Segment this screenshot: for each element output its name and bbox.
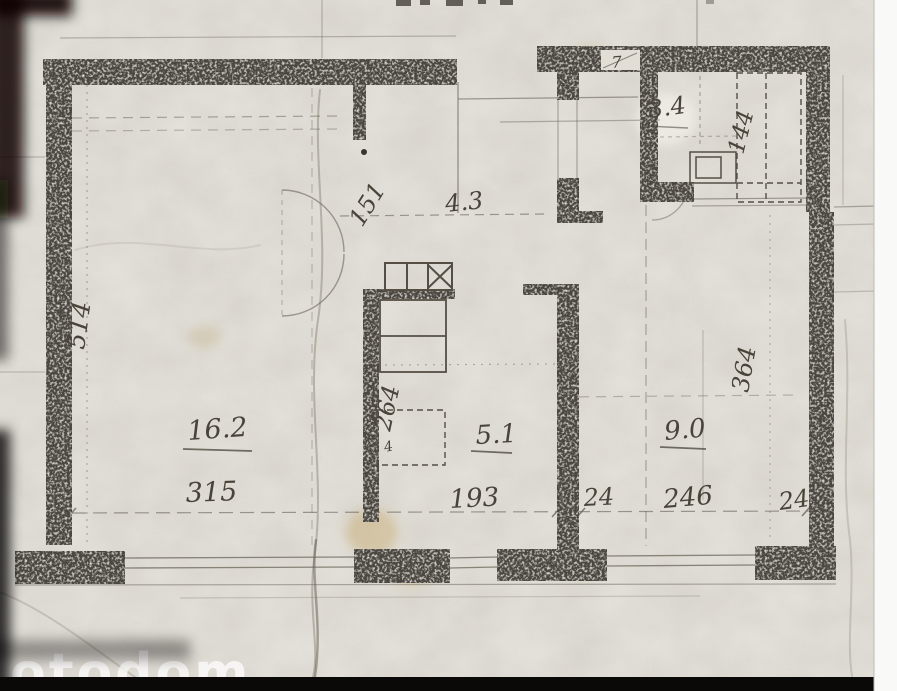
floor-plan-svg: 7	[0, 0, 897, 691]
area-label-hall: 4.3	[443, 186, 485, 218]
dim-kitchen-width: 193	[449, 482, 500, 515]
scanned-floor-plan: 7	[0, 0, 897, 691]
dim-room-main-width: 315	[185, 476, 238, 509]
dim-wall-left: 24	[582, 482, 615, 512]
right-white-strip	[874, 0, 897, 691]
door-hinge-dot	[361, 149, 367, 155]
dim-room-right-width: 246	[661, 481, 714, 515]
area-label-kitchen: 5.1	[475, 419, 518, 451]
area-label-bathroom: 3.4	[646, 91, 688, 124]
entrance-door: 7	[601, 50, 640, 72]
area-label-room-right: 9.0	[663, 413, 707, 446]
paper-background	[0, 0, 897, 691]
bottom-black-bar	[0, 677, 897, 691]
area-label-room-main: 16.2	[186, 412, 248, 447]
dim-wall-right: 24	[776, 484, 811, 516]
